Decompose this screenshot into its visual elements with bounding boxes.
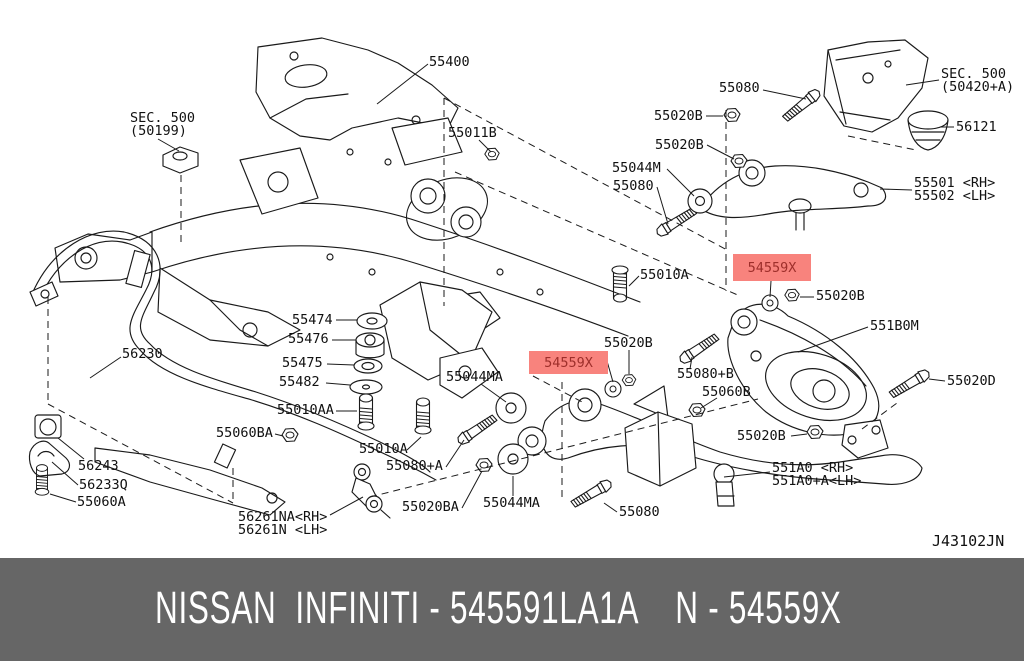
- part-label-sec500-50199: SEC. 500 (50199): [130, 112, 195, 138]
- part-label-55080-a: 55080+A: [386, 460, 443, 473]
- diagram-code: J43102JN: [932, 532, 1004, 550]
- part-label-55482: 55482: [279, 376, 320, 389]
- part-label-56243: 56243: [78, 460, 119, 473]
- part-label-sec500-50420a: SEC. 500 (50420+A): [941, 68, 1014, 94]
- part-label-55010a-bottom: 55010A: [359, 443, 408, 456]
- parts-diagram-page: SEC. 500 (50199) 55400 55011B 55080 5502…: [0, 0, 1024, 661]
- highlighted-part-label-54559x-1[interactable]: 54559X: [733, 254, 811, 281]
- part-label-55044ma-1: 55044MA: [446, 371, 503, 384]
- part-label-55475: 55475: [282, 357, 323, 370]
- part-label-56121: 56121: [956, 121, 997, 134]
- part-label-55080-top: 55080: [719, 82, 760, 95]
- part-label-55080-b: 55080+B: [677, 368, 734, 381]
- part-label-55020b-3: 55020B: [816, 290, 865, 303]
- part-label-55080-mid: 55080: [613, 180, 654, 193]
- part-label-55501-55502: 55501 <RH> 55502 <LH>: [914, 177, 995, 203]
- part-label-551a0: 551A0 <RH> 551A0+A<LH>: [772, 462, 861, 488]
- part-label-55020b-4: 55020B: [604, 337, 653, 350]
- part-label-55010aa: 55010AA: [277, 404, 334, 417]
- part-label-55060b: 55060B: [702, 386, 751, 399]
- part-label-55476: 55476: [288, 333, 329, 346]
- part-label-55020d: 55020D: [947, 375, 996, 388]
- part-label-55400: 55400: [429, 56, 470, 69]
- footer-banner: NISSAN INFINITI - 545591LA1A N - 54559X: [0, 558, 1024, 661]
- part-label-55044ma-2: 55044MA: [483, 497, 540, 510]
- part-label-56233q: 56233Q: [79, 479, 128, 492]
- part-label-56230: 56230: [122, 348, 163, 361]
- diagram-area: SEC. 500 (50199) 55400 55011B 55080 5502…: [0, 0, 1024, 558]
- part-label-55010a-right: 55010A: [640, 269, 689, 282]
- part-label-55060a: 55060A: [77, 496, 126, 509]
- part-label-56261na-56261n: 56261NA<RH> 56261N <LH>: [238, 511, 327, 537]
- part-label-55020b-5: 55020B: [737, 430, 786, 443]
- part-label-55080-bottom: 55080: [619, 506, 660, 519]
- part-label-55060ba: 55060BA: [216, 427, 273, 440]
- part-label-55011b: 55011B: [448, 127, 497, 140]
- part-label-55044m: 55044M: [612, 162, 661, 175]
- highlighted-part-label-54559x-2[interactable]: 54559X: [529, 351, 608, 374]
- diagram-line-art: [0, 0, 1024, 558]
- part-label-55020ba: 55020BA: [402, 501, 459, 514]
- part-label-55474: 55474: [292, 314, 333, 327]
- part-label-55020b-1: 55020B: [654, 110, 703, 123]
- part-label-55020b-2: 55020B: [655, 139, 704, 152]
- part-label-551b0m: 551B0M: [870, 320, 919, 333]
- footer-text: NISSAN INFINITI - 545591LA1A N - 54559X: [155, 581, 842, 633]
